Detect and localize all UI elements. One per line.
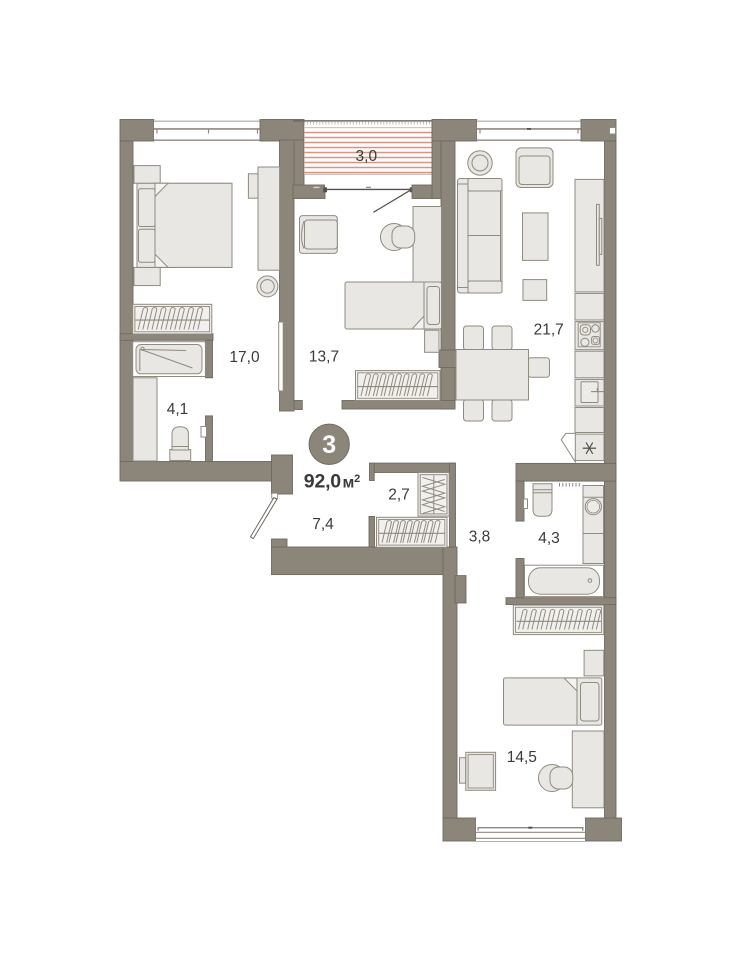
svg-text:92,0м2: 92,0м2 [304,471,360,493]
svg-text:3,0: 3,0 [356,148,378,165]
svg-text:21,7: 21,7 [534,322,564,339]
svg-text:3: 3 [322,431,336,459]
svg-text:3,8: 3,8 [469,529,491,546]
svg-text:14,5: 14,5 [507,749,537,766]
svg-text:7,4: 7,4 [312,516,334,533]
svg-text:4,1: 4,1 [167,401,189,418]
svg-text:4,3: 4,3 [538,530,560,547]
svg-text:13,7: 13,7 [309,349,339,366]
svg-text:2,7: 2,7 [388,487,410,504]
svg-text:17,0: 17,0 [229,349,260,366]
